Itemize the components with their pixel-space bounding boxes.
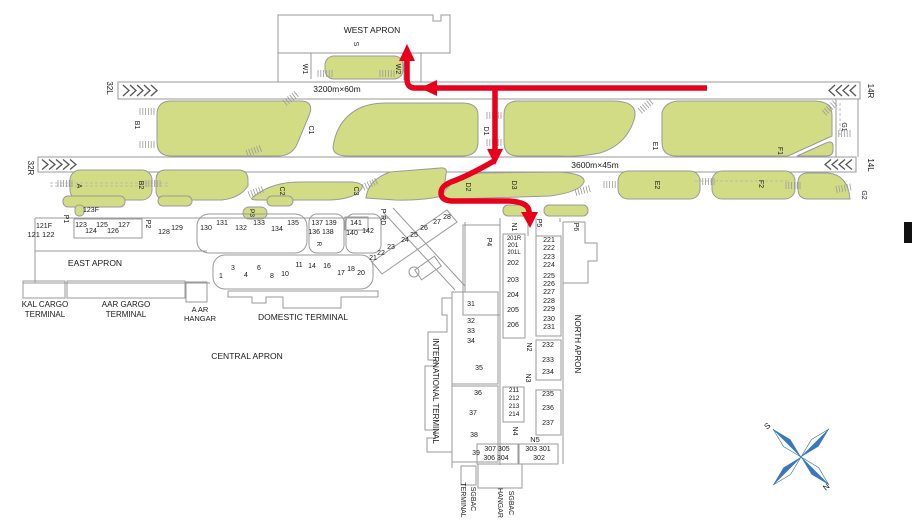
stand-27: 27	[433, 219, 441, 226]
taxiway-label-n2: N2	[525, 343, 532, 352]
stand-141: 141	[350, 220, 362, 227]
stand-37: 37	[469, 410, 477, 417]
stand-236: 236	[542, 405, 554, 412]
taxiway-label-c3: C3	[352, 187, 359, 196]
taxiway-island-g2	[798, 173, 850, 199]
hold-position-marks	[140, 141, 154, 148]
terminal-kal-cargo-line2: TERMINAL	[25, 310, 66, 319]
taxiway-label-g2: G2	[860, 190, 867, 199]
road-label-p-rd: P RD	[379, 209, 386, 226]
stand-39: 39	[472, 450, 480, 457]
runway-2-outline	[38, 157, 856, 172]
stand-214: 214	[509, 411, 520, 418]
stand-137-139: 137 139	[311, 220, 336, 227]
stand-31: 31	[467, 301, 475, 308]
stand-203: 203	[507, 277, 519, 284]
stand-233: 233	[542, 357, 554, 364]
apron-east-label: EAST APRON	[68, 258, 122, 268]
stand-126: 126	[107, 228, 119, 235]
stand-127: 127	[118, 222, 130, 229]
stand-230: 230	[543, 316, 555, 323]
stand-130: 130	[200, 225, 212, 232]
stand-201l: 201L	[507, 250, 521, 256]
taxiway-label-g1: G1	[840, 122, 847, 131]
stand-33: 33	[467, 328, 475, 335]
stand-18: 18	[347, 266, 355, 273]
runway-dimensions-1: 3200m×60m	[313, 84, 361, 94]
apron-stub-p1	[63, 196, 125, 207]
stand-237: 237	[542, 420, 554, 427]
terminal-international-label: INTERNATIONAL TERMINAL	[431, 338, 440, 444]
aar-cargo-terminal-building	[67, 281, 185, 298]
terminal-sgbac-hangar-line1: SGBAC	[507, 491, 514, 516]
apron-west-label: WEST APRON	[344, 25, 401, 35]
hold-position-marks	[604, 181, 618, 188]
stand-6: 6	[257, 265, 261, 272]
stand-4: 4	[244, 272, 248, 279]
edge-marker-bar	[904, 222, 912, 243]
remote-stand-shapes	[409, 256, 441, 280]
stand-22: 22	[377, 250, 385, 257]
stand-32: 32	[467, 318, 475, 325]
stand-135: 135	[287, 220, 299, 227]
terminal-kal-cargo-line1: KAL CARGO	[22, 300, 68, 309]
taxiway-label-n1: N1	[510, 223, 517, 232]
runway-designator-14r: 14R	[866, 84, 875, 99]
stand-121-122: 121 122	[27, 230, 54, 239]
stand-213: 213	[509, 403, 520, 410]
stand-306-304: 306 304	[483, 455, 508, 462]
taxiway-label-a: A	[75, 184, 82, 189]
stand-1: 1	[219, 273, 223, 280]
stand-201: 201	[508, 242, 519, 249]
stand-136-138: 136 138	[308, 229, 333, 236]
airport-diagram-canvas: WEST APRONSW1W23200m×60m3600m×45m32L32R1…	[0, 0, 915, 531]
stand-28: 28	[443, 214, 451, 221]
runway-designator-32l: 32L	[105, 81, 114, 95]
taxiway-label-p1: P1	[62, 215, 69, 224]
taxiway-label-c1: C1	[307, 126, 314, 135]
taxiway-island-d1e1	[504, 101, 635, 156]
stand-14: 14	[308, 263, 316, 270]
stand-303-301: 303 301	[525, 446, 550, 453]
stand-234: 234	[542, 369, 554, 376]
stand-11: 11	[295, 262, 302, 269]
compass-rose	[773, 429, 829, 485]
stand-224: 224	[543, 262, 555, 269]
stand-206: 206	[507, 322, 519, 329]
stand-26: 26	[420, 225, 428, 232]
stand-231: 231	[543, 324, 555, 331]
stand-225: 225	[543, 273, 555, 280]
stand-228: 228	[543, 298, 555, 305]
apron-stub-p3a	[267, 196, 293, 206]
stand-223: 223	[543, 254, 555, 261]
taxiway-label-w1: W1	[301, 64, 308, 75]
stand-21: 21	[369, 255, 377, 262]
hold-position-marks	[638, 99, 653, 113]
taxiway-label-e1: E1	[651, 142, 658, 151]
stand-16: 16	[323, 263, 331, 270]
stand-140: 140	[346, 230, 358, 237]
stand-3: 3	[231, 265, 235, 272]
stand-226: 226	[543, 281, 555, 288]
apron-stub-p2	[158, 196, 192, 206]
terminal-domestic-label: DOMESTIC TERMINAL	[258, 312, 348, 322]
stand-235: 235	[542, 391, 554, 398]
apron-north-label: NORTH APRON	[573, 315, 582, 374]
stand-123f: 123F	[83, 207, 99, 214]
stand-124: 124	[85, 228, 97, 235]
taxiway-island-e1g1	[662, 101, 832, 156]
stand-24: 24	[401, 237, 409, 244]
taxiway-label-p4: P4	[485, 238, 492, 247]
stand-202: 202	[507, 260, 519, 267]
stand-10: 10	[281, 271, 289, 278]
taxiway-island-c3d2-wing	[366, 168, 446, 200]
terminal-aar-hangar-line1: A AR	[192, 305, 209, 314]
stand-307-305: 307 305	[484, 446, 509, 453]
stand-38: 38	[470, 432, 478, 439]
stand-8: 8	[270, 273, 274, 280]
taxiway-label-b2: B2	[137, 181, 144, 190]
kal-cargo-terminal-building	[23, 281, 65, 298]
aar-hangar-building	[186, 282, 207, 302]
stand-132: 132	[235, 225, 247, 232]
stand-129: 129	[171, 225, 183, 232]
terminal-sgbac-terminal-line1: SGBAC	[469, 487, 476, 512]
stand-222: 222	[543, 245, 555, 252]
stand-229: 229	[543, 306, 555, 313]
stand-35: 35	[475, 365, 483, 372]
taxiway-island-c1d1	[333, 103, 478, 156]
stand-25: 25	[410, 232, 418, 239]
stand-212: 212	[509, 395, 520, 402]
taxiway-label-p6: P6	[572, 223, 579, 232]
compass-south-label: S	[762, 421, 772, 431]
runway-designator-32r: 32R	[26, 161, 35, 176]
terminal-aar-cargo-line2: TERMINAL	[106, 310, 147, 319]
runway-designator-14l: 14L	[866, 158, 875, 172]
stand-211: 211	[509, 387, 520, 394]
stand-302: 302	[533, 455, 545, 462]
taxiway-label-n3: N3	[524, 374, 531, 383]
stand-17: 17	[337, 270, 345, 277]
stand-121f: 121F	[36, 223, 52, 230]
taxiway-island-b1c1	[157, 101, 311, 156]
taxiway-label-p2: P2	[144, 220, 151, 229]
compass-north-label: N	[821, 482, 831, 493]
taxiway-label-d2: D2	[464, 183, 471, 192]
taxiway-label-c2: C2	[278, 187, 285, 196]
stand-134: 134	[271, 226, 283, 233]
taxiway-label-n5: N5	[530, 435, 540, 444]
airport-ground-chart: WEST APRONSW1W23200m×60m3600m×45m32L32R1…	[0, 0, 915, 531]
taxiway-label-w2: W2	[394, 64, 401, 75]
taxiway-label-p3: P3	[248, 209, 255, 217]
stand-128: 128	[158, 229, 170, 236]
stand-227: 227	[543, 289, 555, 296]
taxiway-label-f1: F1	[776, 147, 783, 155]
apron-central-label: CENTRAL APRON	[211, 351, 282, 361]
stand-20: 20	[357, 270, 365, 277]
runway-dimensions-2: 3600m×45m	[571, 160, 619, 170]
terminal-sgbac-terminal-line2: TERMINAL	[459, 482, 466, 518]
stand-23: 23	[387, 244, 395, 251]
taxiway-island-f2	[712, 171, 795, 199]
taxiway-label-n4: N4	[511, 427, 518, 436]
stand-34: 34	[467, 338, 475, 345]
stand-232: 232	[542, 342, 554, 349]
taxiway-label-e2: E2	[653, 181, 660, 190]
stand-204: 204	[507, 292, 519, 299]
hold-position-marks	[140, 108, 154, 115]
taxiway-label-f2: F2	[757, 180, 764, 188]
terminal-sgbac-hangar-line2: HANGAR	[496, 488, 503, 518]
taxiway-label-d3: D3	[510, 181, 517, 190]
stand-131: 131	[216, 220, 228, 227]
terminal-aar-hangar-line2: HANGAR	[184, 314, 217, 323]
stand-133: 133	[253, 220, 265, 227]
taxiway-label-r: R	[315, 242, 322, 247]
apron-stub-p6	[544, 205, 588, 216]
taxiway-label-d1: D1	[482, 127, 489, 136]
stand-205: 205	[507, 307, 519, 314]
sgbac-hangar-building	[478, 464, 522, 488]
terminal-aar-cargo-line1: AAR GARGO	[102, 300, 150, 309]
taxiway-label-p5: P5	[535, 219, 542, 228]
domestic-terminal-building	[228, 291, 378, 308]
stand-221: 221	[543, 237, 555, 244]
taxiway-label-b1: B1	[133, 121, 140, 130]
stand-142: 142	[362, 228, 374, 235]
stand-36: 36	[474, 390, 482, 397]
taxiway-label-s: S	[352, 42, 359, 47]
